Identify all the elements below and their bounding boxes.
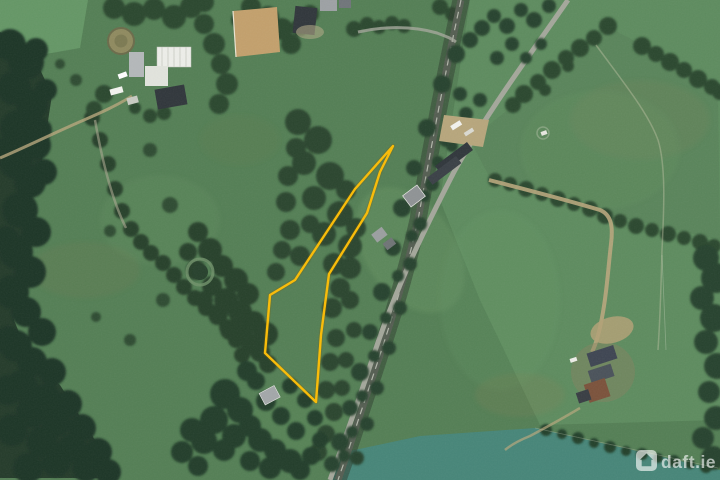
- map-canvas: daft.ie: [0, 0, 720, 480]
- watermark-label: daft.ie: [661, 452, 716, 472]
- grain-overlay: [0, 0, 720, 480]
- satellite-map-image: daft.ie: [0, 0, 720, 480]
